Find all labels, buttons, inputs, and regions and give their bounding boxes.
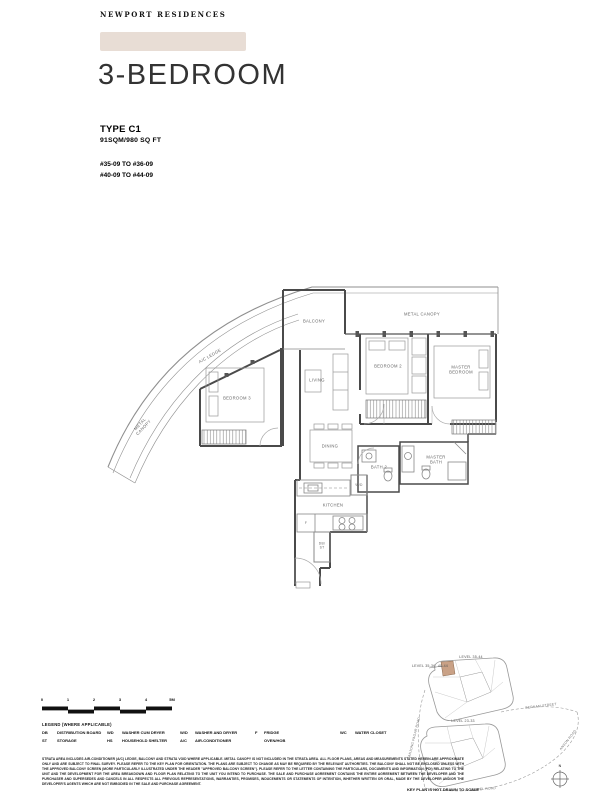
room-label-bath-2: BATH 2 [371,464,387,469]
room-label-bedroom-2: BEDROOM 2 [374,363,402,368]
page-title: 3-BEDROOM [98,59,287,92]
legend-column-5: WCWATER CLOSET [340,729,386,737]
disclaimer-text: STRATA AREA INCLUDES AIR-CONDITIONER (A/… [42,757,464,787]
legend-abbr: F [255,729,264,737]
room-label-bedroom-3: BEDROOM 3 [223,395,251,400]
unit-type-label: TYPE C1 [100,124,141,135]
room-label-fridge: F [305,521,307,525]
legend-entry: W/DWASHER AND DRYER [180,729,237,737]
legend-entry: DBDISTRIBUTION BOARD [42,729,101,737]
room-label-kitchen: KITCHEN [323,502,343,507]
legend-abbr: HS [107,737,122,745]
legend-label: OVEN/HOB [264,737,285,745]
legend-column-4: FFRIDGE OVEN/HOB [255,729,285,744]
legend-label: STORAGE [57,737,77,745]
room-label-master-bedroom: MASTER BEDROOM [442,365,480,376]
legend-column-3: W/DWASHER AND DRYER A/CAIR-CONDITIONER [180,729,237,744]
legend-abbr [255,737,264,745]
compass-icon [551,770,569,788]
floor-plan: BALCONY METAL CANOPY A/C LEDGE METAL CAN… [100,274,500,592]
unit-stack-ranges: #35-09 TO #36-09 #40-09 TO #44-09 [100,159,153,181]
legend-abbr: DB [42,729,57,737]
key-plan-caption: KEY PLAN IS NOT DRAWN TO SCALE [407,787,479,792]
legend-entry: HSHOUSEHOLD SHELTER [107,737,167,745]
room-label-balcony: BALCONY [303,318,325,323]
unit-range-1: #35-09 TO #36-09 [100,159,153,170]
room-label-db-st: DB/ ST [316,542,328,551]
room-label-dining: DINING [322,443,338,448]
legend-entry: WDWASHER CUM DRYER [107,729,167,737]
key-plan-level-bottom-label: LEVEL 23-33 [451,719,474,723]
room-label-washer-dryer: W/D [355,483,362,487]
legend-title: LEGEND (WHERE APPLICABLE) [42,722,112,727]
compass-north-label: N [559,764,562,768]
legend-label: FRIDGE [264,729,279,737]
legend-abbr: W/D [180,729,195,737]
scale-bar [42,702,174,718]
legend-entry: FFRIDGE [255,729,285,737]
legend-entry: OVEN/HOB [255,737,285,745]
legend-entry: STSTORAGE [42,737,101,745]
legend-label: WATER CLOSET [355,729,386,737]
legend-abbr: A/C [180,737,195,745]
legend-entry: A/CAIR-CONDITIONER [180,737,237,745]
legend-label: AIR-CONDITIONER [195,737,231,745]
structural-column [280,348,284,446]
legend-abbr: WD [107,729,122,737]
brand-logo: NEWPORT RESIDENCES [100,10,226,19]
legend-label: WASHER AND DRYER [195,729,237,737]
unit-range-2: #40-09 TO #44-09 [100,170,153,181]
room-label-master-bath: MASTER BATH [422,455,450,466]
legend-entry: WCWATER CLOSET [340,729,386,737]
legend-abbr: ST [42,737,57,745]
legend-label: HOUSEHOLD SHELTER [122,737,167,745]
room-label-living: LIVING [309,377,325,382]
legend-label: DISTRIBUTION BOARD [57,729,101,737]
accent-bar [100,32,246,51]
room-label-metal-canopy-top: METAL CANOPY [404,311,440,316]
floor-plan-drawing [100,274,500,592]
legend-abbr: WC [340,729,355,737]
legend-label: WASHER CUM DRYER [122,729,165,737]
legend-column-1: DBDISTRIBUTION BOARD STSTORAGE [42,729,101,744]
unit-area-label: 91SQM/980 SQ FT [100,137,161,144]
key-plan-level-highlight-label: LEVEL 35-36, 40-44 [412,664,448,668]
key-plan-level-top-label: LEVEL 35-44 [459,655,482,659]
legend-column-2: WDWASHER CUM DRYER HSHOUSEHOLD SHELTER [107,729,167,744]
